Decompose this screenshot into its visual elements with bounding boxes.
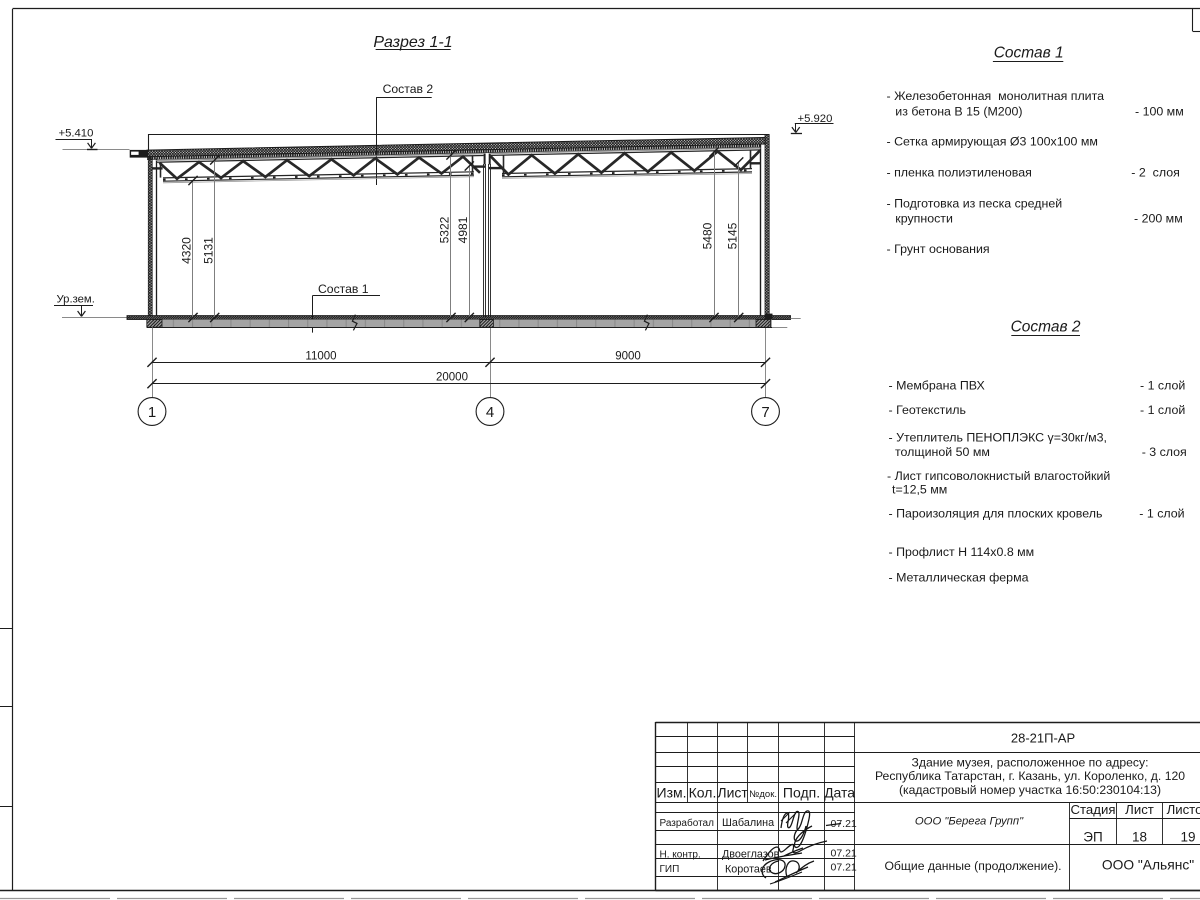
svg-text:Общие данные (продолжение).: Общие данные (продолжение). <box>884 859 1061 873</box>
svg-text:Шабалина: Шабалина <box>722 817 774 829</box>
svg-text:Состав 2: Состав 2 <box>383 82 434 96</box>
svg-text:(кадастровый номер участка 16:: (кадастровый номер участка 16:50:230104:… <box>899 783 1161 797</box>
svg-text:Разрез 1-1: Разрез 1-1 <box>373 34 452 51</box>
svg-text:ООО "Берега Групп": ООО "Берега Групп" <box>915 816 1024 828</box>
svg-text:- пленка полиэтиленовая: - пленка полиэтиленовая <box>887 166 1032 180</box>
svg-text:- Сетка армирующая Ø3 100х100: - Сетка армирующая Ø3 100х100 мм <box>887 135 1098 149</box>
svg-text:ООО "Альянс": ООО "Альянс" <box>1102 858 1194 873</box>
svg-text:4: 4 <box>486 404 494 421</box>
svg-text:4320: 4320 <box>180 237 194 264</box>
svg-text:Дата: Дата <box>824 785 855 801</box>
svg-text:- Грунт основания: - Грунт основания <box>887 242 990 256</box>
svg-text:- 1 слой: - 1 слой <box>1140 403 1185 417</box>
svg-text:Состав 1: Состав 1 <box>994 45 1064 62</box>
svg-text:Ур.зем.: Ур.зем. <box>57 294 95 306</box>
svg-text:5480: 5480 <box>701 222 715 249</box>
svg-text:- Подготовка из песка средней: - Подготовка из песка средней <box>887 196 1063 210</box>
svg-text:t=12,5 мм: t=12,5 мм <box>892 482 947 496</box>
svg-text:- Профлист Н 114х0.8 мм: - Профлист Н 114х0.8 мм <box>889 545 1035 559</box>
svg-text:Лист: Лист <box>1125 802 1154 817</box>
svg-text:5145: 5145 <box>725 222 739 249</box>
svg-text:- Лист гипсоволокнистый влагос: - Лист гипсоволокнистый влагостойкий <box>887 469 1110 483</box>
svg-text:9000: 9000 <box>615 350 641 362</box>
svg-text:1: 1 <box>148 404 156 421</box>
svg-text:28-21П-АР: 28-21П-АР <box>1011 731 1075 746</box>
svg-text:- Утеплитель ПЕНОПЛЭКС γ=30кг/: - Утеплитель ПЕНОПЛЭКС γ=30кг/м3, <box>889 431 1108 445</box>
svg-text:18: 18 <box>1132 830 1147 845</box>
svg-text:Лист: Лист <box>717 785 748 801</box>
svg-text:Изм.: Изм. <box>657 785 687 801</box>
svg-text:5322: 5322 <box>438 216 452 243</box>
svg-text:- 1 слой: - 1 слой <box>1140 378 1185 392</box>
svg-text:Состав 2: Состав 2 <box>1011 318 1081 335</box>
svg-text:№док.: №док. <box>749 789 777 800</box>
svg-text:- Железобетонная монолитная п: - Железобетонная монолитная плита <box>887 89 1105 103</box>
svg-text:из бетона В 15 (М200): из бетона В 15 (М200) <box>895 104 1022 118</box>
svg-text:Республика Татарстан, г. Казан: Республика Татарстан, г. Казань, ул. Кор… <box>875 769 1185 783</box>
svg-text:7: 7 <box>761 404 769 421</box>
svg-text:толщиной 50 мм: толщиной 50 мм <box>895 445 990 459</box>
svg-text:Подп.: Подп. <box>783 785 820 801</box>
svg-text:Разработал: Разработал <box>660 817 715 829</box>
svg-text:- 200 мм: - 200 мм <box>1134 212 1183 226</box>
svg-text:11000: 11000 <box>305 350 336 362</box>
svg-text:- 100 мм: - 100 мм <box>1135 104 1184 118</box>
svg-text:ЭП: ЭП <box>1083 830 1102 845</box>
svg-text:Листов: Листов <box>1167 802 1200 817</box>
svg-text:Состав 1: Состав 1 <box>318 282 369 296</box>
svg-text:Н. контр.: Н. контр. <box>660 850 701 861</box>
svg-text:07.21: 07.21 <box>831 848 857 860</box>
svg-text:- 1 слой: - 1 слой <box>1139 506 1184 520</box>
svg-text:Здание музея, расположенное по: Здание музея, расположенное по адресу: <box>912 756 1149 770</box>
svg-text:ГИП: ГИП <box>660 864 680 875</box>
svg-text:крупности: крупности <box>895 212 953 226</box>
svg-text:07.21: 07.21 <box>831 862 857 874</box>
svg-text:- 3 слоя: - 3 слоя <box>1142 445 1187 459</box>
svg-text:- Пароизоляция для плоских кро: - Пароизоляция для плоских кровель <box>889 506 1103 520</box>
svg-text:- Геотекстиль: - Геотекстиль <box>889 403 966 417</box>
svg-text:+5.410: +5.410 <box>59 128 94 140</box>
svg-text:- 2 слоя: - 2 слоя <box>1131 166 1180 180</box>
svg-text:5131: 5131 <box>201 237 215 264</box>
svg-text:- Мембрана ПВХ: - Мембрана ПВХ <box>889 378 985 392</box>
svg-text:Кол.: Кол. <box>689 785 717 801</box>
svg-text:- Металлическая ферма: - Металлическая ферма <box>889 571 1029 585</box>
svg-text:20000: 20000 <box>436 372 468 384</box>
svg-text:19: 19 <box>1180 830 1195 845</box>
svg-text:Стадия: Стадия <box>1071 802 1116 817</box>
svg-text:4981: 4981 <box>456 216 470 243</box>
